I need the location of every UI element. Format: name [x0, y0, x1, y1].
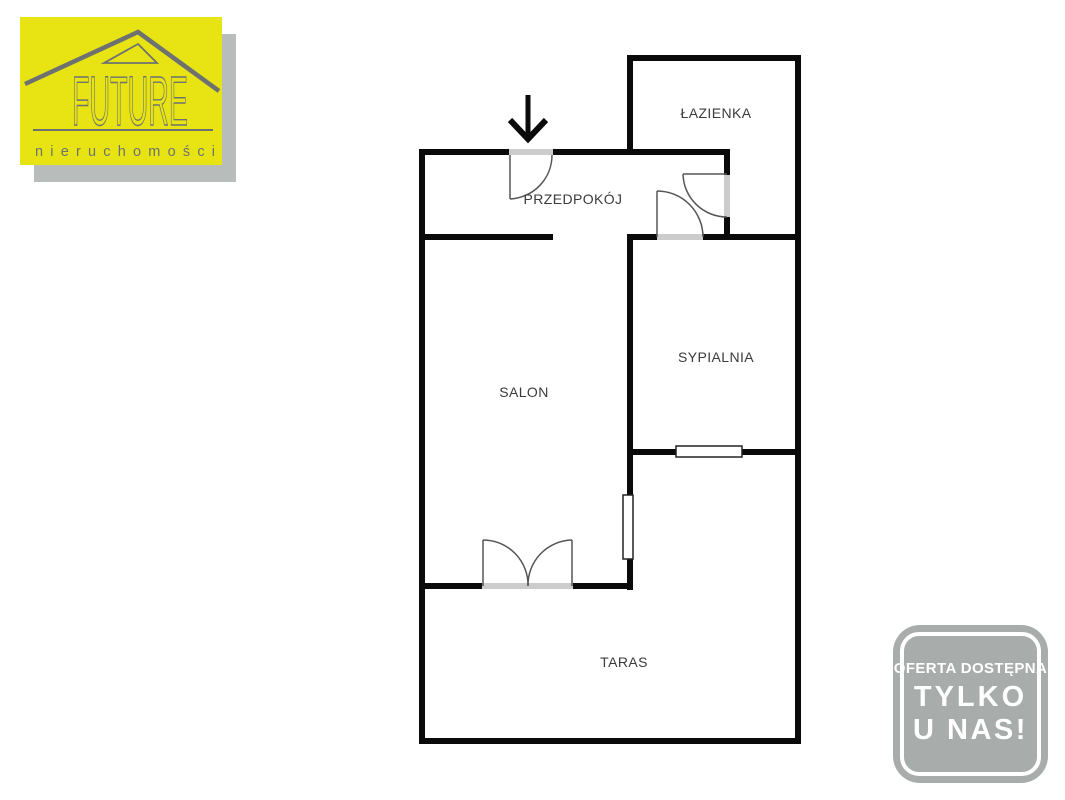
logo-subtitle-text: nieruchomości — [35, 144, 215, 160]
wall — [795, 55, 801, 744]
door-opening — [509, 149, 553, 155]
badge-offer-text: OFERTA DOSTĘPNA — [894, 660, 1048, 677]
dormer-icon — [104, 44, 157, 63]
exclusive-offer-badge: OFERTA DOSTĘPNA TYLKO U NAS! — [893, 625, 1048, 783]
door-opening — [657, 234, 703, 240]
room-label-łazienka: ŁAZIENKA — [681, 105, 752, 121]
badge-border: OFERTA DOSTĘPNA TYLKO U NAS! — [900, 632, 1041, 776]
logo-brand-text: FUTURE — [72, 62, 188, 140]
wall — [419, 149, 730, 155]
door-swing-arc — [657, 191, 703, 237]
wall — [419, 234, 553, 240]
floorplan-page: ŁAZIENKAPRZEDPOKÓJSYPIALNIASALONTARAS FU… — [0, 0, 1065, 800]
room-label-przedpokój: PRZEDPOKÓJ — [524, 191, 623, 207]
logo-box: FUTURE nieruchomości — [20, 17, 222, 165]
room-label-salon: SALON — [499, 384, 548, 400]
door-swing-arc — [483, 540, 528, 586]
agency-logo: FUTURE nieruchomości — [0, 0, 260, 200]
wall — [627, 55, 633, 155]
door-opening — [724, 175, 730, 217]
badge-unas-text: U NAS! — [913, 714, 1028, 747]
window — [676, 446, 742, 457]
door-swing-arc — [683, 174, 727, 217]
room-label-sypialnia: SYPIALNIA — [678, 349, 754, 365]
window — [623, 495, 633, 559]
badge-tylko-text: TYLKO — [914, 682, 1027, 714]
room-label-taras: TARAS — [600, 654, 648, 670]
door-swing-arc — [528, 540, 572, 586]
wall — [627, 55, 801, 61]
wall — [627, 234, 801, 240]
wall — [419, 738, 801, 744]
